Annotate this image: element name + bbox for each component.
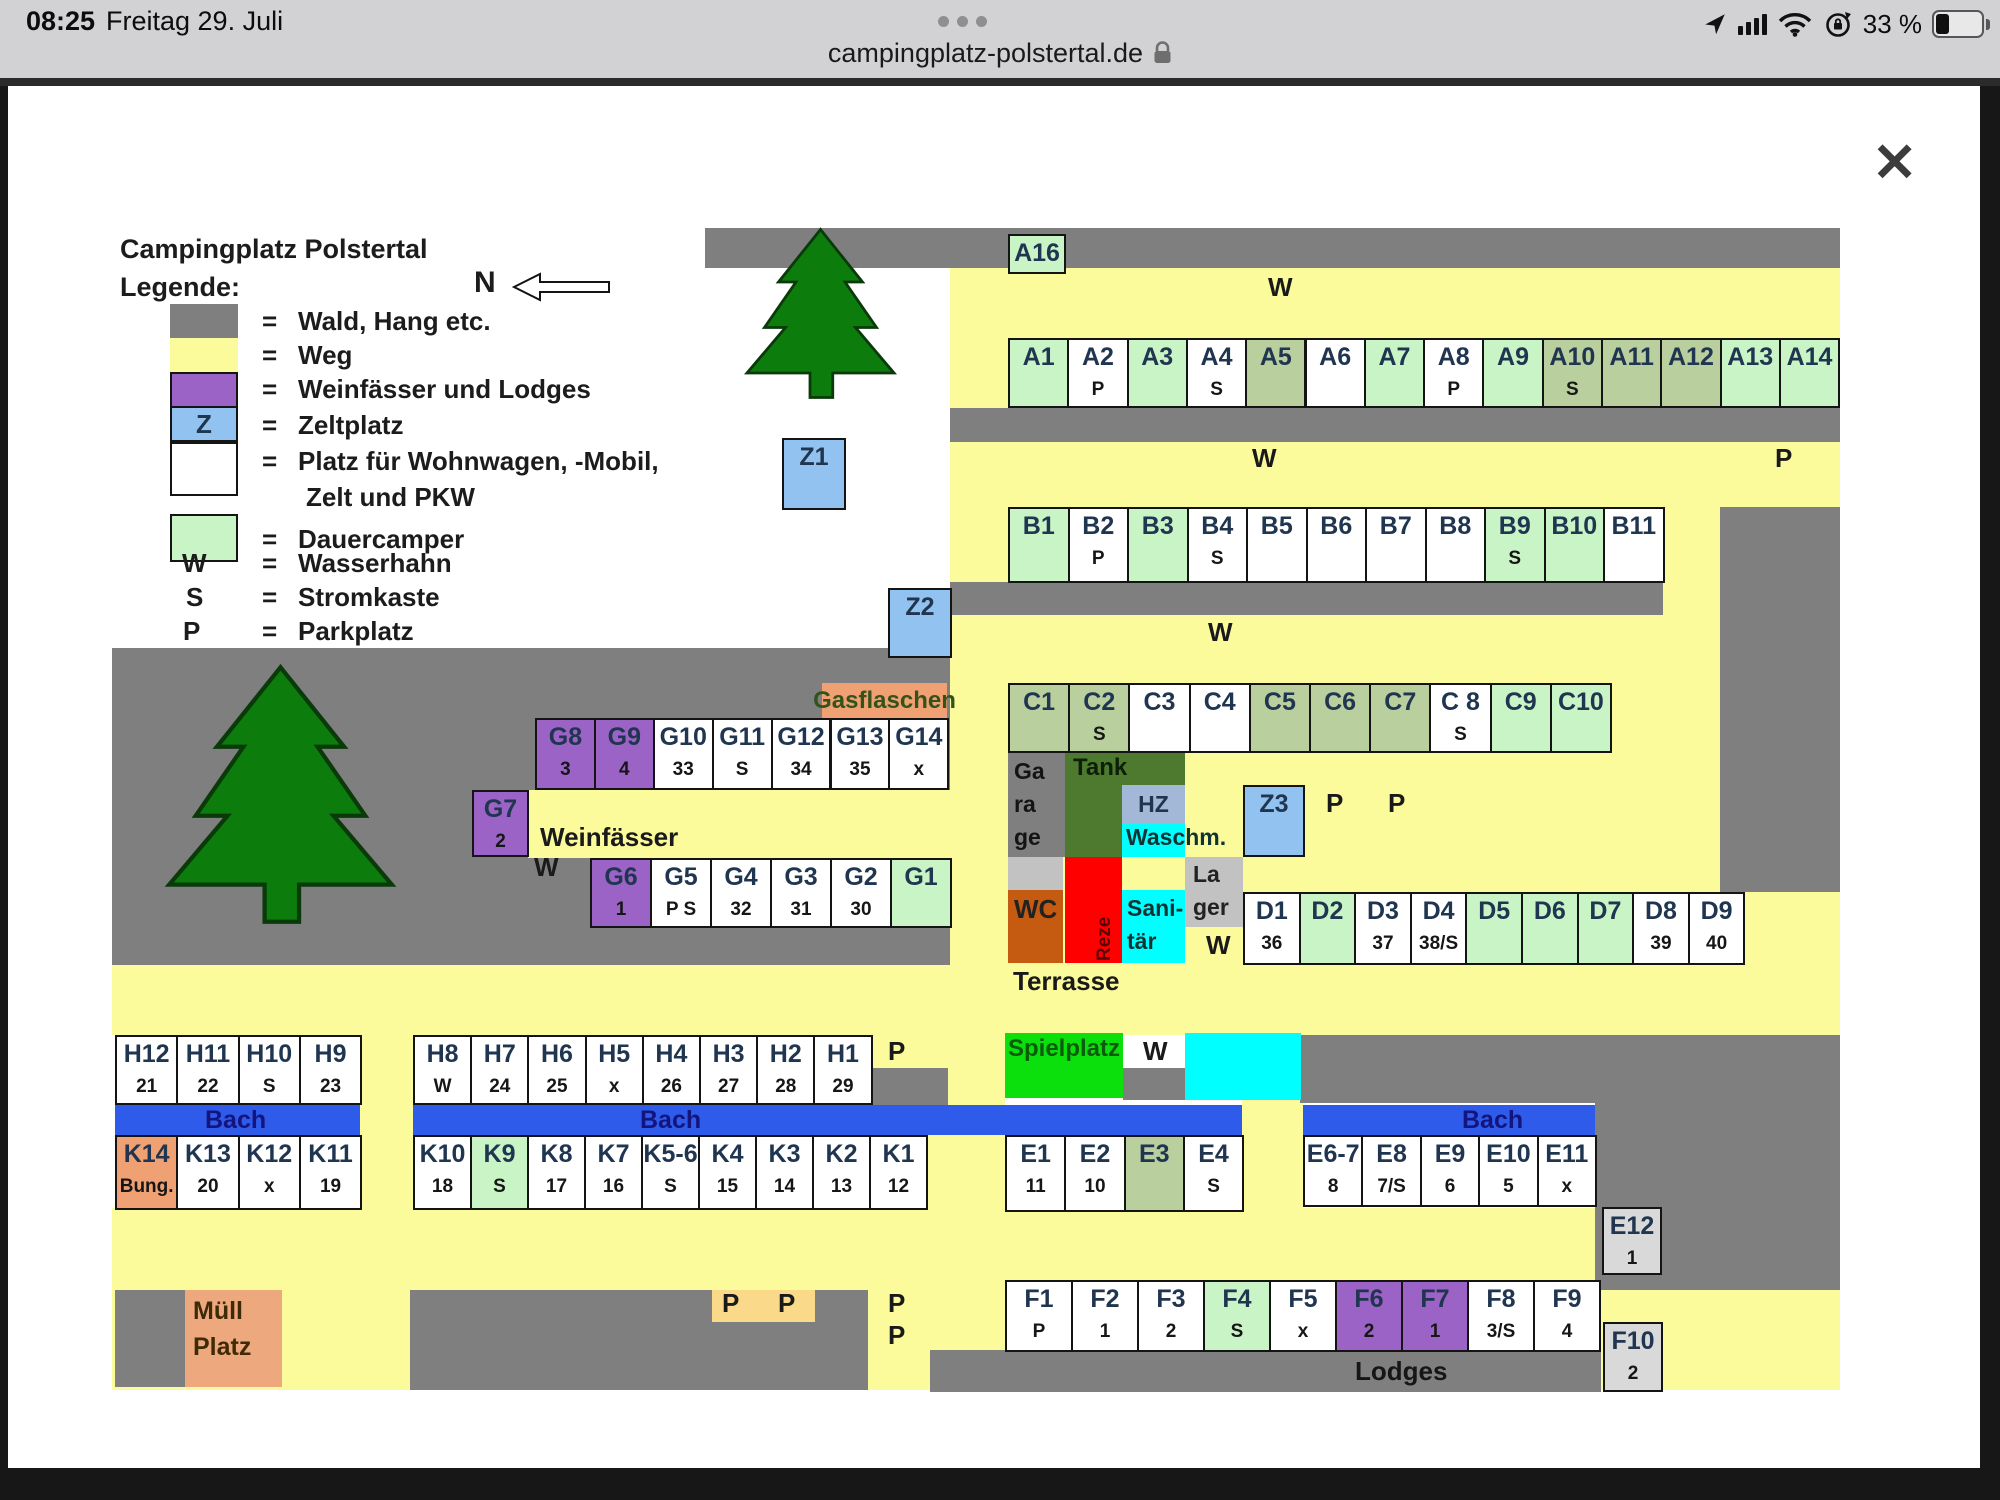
site-cell-sub: 7/S: [1363, 1175, 1419, 1198]
site-cell-id: F2: [1073, 1285, 1137, 1314]
site-cell-C4: C4: [1189, 683, 1251, 753]
site-cell-B4: B4S: [1187, 507, 1249, 583]
site-cell-id: G13: [832, 723, 889, 752]
site-cell-id: F8: [1469, 1285, 1533, 1314]
site-cell-E8: E87/S: [1361, 1135, 1421, 1207]
site-cell-id: A9: [1484, 343, 1541, 372]
site-cell-id: K9: [472, 1140, 527, 1169]
site-cell-id: K2: [814, 1140, 869, 1169]
site-cell-G6: G61: [590, 858, 652, 928]
site-cell-id: K3: [757, 1140, 812, 1169]
site-cell-sub: 39: [1634, 932, 1688, 955]
site-cell-H3: H327: [699, 1035, 758, 1105]
site-cell-H8: H8W: [413, 1035, 472, 1105]
site-cell-sub: 13: [814, 1175, 869, 1198]
site-cell-H9: H923: [299, 1035, 362, 1105]
site-cell-F6: F62: [1335, 1280, 1403, 1352]
site-cell-sub: 21: [117, 1075, 176, 1098]
site-cell-sub: P: [1070, 547, 1128, 570]
site-cell-id: B5: [1248, 512, 1306, 541]
site-cell-sub: 28: [758, 1075, 813, 1098]
site-cell-id: C5: [1251, 688, 1309, 717]
site-cell-A8: A8P: [1423, 338, 1484, 408]
site-cell-sub: 2: [1605, 1362, 1661, 1385]
site-cell-H6: H625: [527, 1035, 586, 1105]
site-cell-sub: 11: [1007, 1175, 1064, 1198]
site-cell-id: H6: [529, 1040, 584, 1069]
site-cell-id: E11: [1539, 1140, 1595, 1169]
site-cell-D3: D337: [1354, 892, 1412, 965]
site-cell-sub: 35: [832, 758, 889, 781]
site-cell-id: G8: [537, 723, 594, 752]
site-cell-id: F7: [1403, 1285, 1467, 1314]
site-cell-E2: E210: [1064, 1135, 1125, 1212]
site-cell-id: C 8: [1431, 688, 1489, 717]
site-cell-id: D1: [1245, 897, 1299, 926]
site-cell-K11: K1119: [299, 1135, 362, 1210]
site-cell-G12: G1234: [771, 718, 832, 790]
site-cell-A5: A5: [1245, 338, 1306, 408]
site-cell-sub: 3: [537, 758, 594, 781]
path-label-p_h: P: [888, 1036, 905, 1066]
site-cell-E12: E121: [1602, 1207, 1662, 1275]
site-cell-K8: K817: [527, 1135, 586, 1210]
path-label-p_beige_1: P: [722, 1288, 739, 1318]
screen-edge-right: [1980, 86, 2000, 1500]
site-cell-A16: A16: [1008, 234, 1066, 274]
site-cell-id: A10: [1544, 343, 1601, 372]
path-label-w_band2: W: [1252, 443, 1277, 473]
site-cell-sub: 1: [1403, 1320, 1467, 1343]
site-cell-F9: F94: [1533, 1280, 1601, 1352]
site-cell-sub: 24: [472, 1075, 527, 1098]
bottom-bar: [0, 1468, 2000, 1500]
screen-edge-left: [0, 86, 8, 1500]
site-cell-id: A8: [1425, 343, 1482, 372]
site-cell-id: E4: [1185, 1140, 1242, 1169]
site-cells-layer: A1A2PA3A4SA5A6A7A8PA9A10SA11A12A13A14B1B…: [0, 0, 2000, 1500]
site-cell-id: C2: [1070, 688, 1128, 717]
site-cell-sub: 27: [701, 1075, 756, 1098]
site-cell-sub: 2: [474, 830, 527, 853]
site-cell-id: A14: [1781, 343, 1838, 372]
site-cell-id: G9: [596, 723, 653, 752]
site-cell-K7: K716: [584, 1135, 643, 1210]
site-cell-id: C3: [1130, 688, 1188, 717]
site-cell-id: G3: [772, 863, 830, 892]
site-cell-sub: 10: [1066, 1175, 1123, 1198]
site-cell-K12: K12x: [238, 1135, 301, 1210]
site-cell-C10: C10: [1550, 683, 1612, 753]
site-cell-sub: Bung.: [117, 1175, 176, 1198]
site-cell-id: A7: [1366, 343, 1423, 372]
site-cell-id: H8: [415, 1040, 470, 1069]
site-cell-A12: A12: [1660, 338, 1721, 408]
site-cell-id: G6: [592, 863, 650, 892]
site-cell-sub: 38/S: [1412, 932, 1466, 955]
site-cell-id: D3: [1356, 897, 1410, 926]
site-cell-id: B7: [1367, 512, 1425, 541]
site-cell-id: B9: [1486, 512, 1544, 541]
site-cell-D1: D136: [1243, 892, 1301, 965]
site-cell-G8: G83: [535, 718, 596, 790]
site-cell-sub: x: [1539, 1175, 1595, 1198]
site-cell-E4: E4S: [1183, 1135, 1244, 1212]
site-cell-sub: 8: [1305, 1175, 1361, 1198]
site-cell-id: E12: [1604, 1212, 1660, 1241]
site-cell-C2: C2S: [1068, 683, 1130, 753]
site-cell-F2: F21: [1071, 1280, 1139, 1352]
site-cell-id: D8: [1634, 897, 1688, 926]
site-cell-id: F3: [1139, 1285, 1203, 1314]
site-cell-sub: 20: [178, 1175, 237, 1198]
site-cell-C 8: C 8S: [1429, 683, 1491, 753]
site-map: Campingplatz Polstertal Legende: N Z W S…: [0, 0, 2000, 1500]
path-label-w_lager: W: [1206, 930, 1231, 960]
site-cell-id: A2: [1069, 343, 1126, 372]
site-cell-sub: x: [587, 1075, 642, 1098]
site-cell-sub: 31: [772, 898, 830, 921]
site-cell-id: F6: [1337, 1285, 1401, 1314]
site-cell-C7: C7: [1369, 683, 1431, 753]
site-cell-id: B2: [1070, 512, 1128, 541]
site-cell-sub: S: [1070, 723, 1128, 746]
site-cell-G11: G11S: [712, 718, 773, 790]
site-cell-id: K4: [700, 1140, 755, 1169]
site-cell-id: A12: [1662, 343, 1719, 372]
site-cell-K10: K1018: [413, 1135, 472, 1210]
site-cell-A13: A13: [1720, 338, 1781, 408]
site-cell-C9: C9: [1490, 683, 1552, 753]
site-cell-id: F1: [1007, 1285, 1071, 1314]
path-label-w_spielplatz: W: [1143, 1036, 1168, 1066]
site-cell-id: H2: [758, 1040, 813, 1069]
site-cell-G2: G230: [830, 858, 892, 928]
site-cell-id: C7: [1371, 688, 1429, 717]
path-label-w_band3: W: [1208, 617, 1233, 647]
site-cell-sub: 1: [1604, 1247, 1660, 1270]
site-cell-sub: 32: [712, 898, 770, 921]
site-cell-sub: S: [1431, 723, 1489, 746]
site-cell-sub: x: [1271, 1320, 1335, 1343]
site-cell-D8: D839: [1632, 892, 1690, 965]
site-cell-id: H7: [472, 1040, 527, 1069]
site-cell-A1: A1: [1008, 338, 1069, 408]
site-cell-A7: A7: [1364, 338, 1425, 408]
site-cell-id: C4: [1191, 688, 1249, 717]
site-cell-sub: S: [1185, 1175, 1242, 1198]
site-cell-id: G12: [773, 723, 830, 752]
path-label-p_beige_2: P: [778, 1288, 795, 1318]
site-cell-sub: x: [240, 1175, 299, 1198]
site-cell-id: F4: [1205, 1285, 1269, 1314]
site-cell-sub: 37: [1356, 932, 1410, 955]
site-cell-id: F9: [1535, 1285, 1599, 1314]
site-cell-F3: F32: [1137, 1280, 1205, 1352]
site-cell-id: A4: [1188, 343, 1245, 372]
site-cell-E1: E111: [1005, 1135, 1066, 1212]
site-cell-id: A1: [1010, 343, 1067, 372]
site-cell-sub: S: [1205, 1320, 1269, 1343]
site-cell-A10: A10S: [1542, 338, 1603, 408]
site-cell-H10: H10S: [238, 1035, 301, 1105]
site-cell-Z1: Z1: [782, 438, 846, 510]
site-cell-G1: G1: [890, 858, 952, 928]
site-cell-id: H5: [587, 1040, 642, 1069]
site-cell-sub: P S: [652, 898, 710, 921]
site-cell-id: A16: [1010, 239, 1064, 268]
site-cell-id: C6: [1311, 688, 1369, 717]
site-cell-id: K13: [178, 1140, 237, 1169]
site-cell-id: B3: [1129, 512, 1187, 541]
site-cell-F1: F1P: [1005, 1280, 1073, 1352]
site-cell-id: B10: [1546, 512, 1604, 541]
site-cell-id: E2: [1066, 1140, 1123, 1169]
site-cell-F5: F5x: [1269, 1280, 1337, 1352]
site-cell-sub: S: [240, 1075, 299, 1098]
site-cell-A9: A9: [1482, 338, 1543, 408]
site-cell-sub: P: [1069, 378, 1126, 401]
site-cell-sub: 12: [871, 1175, 926, 1198]
site-cell-id: H11: [178, 1040, 237, 1069]
site-cell-id: A6: [1307, 343, 1364, 372]
site-cell-C5: C5: [1249, 683, 1311, 753]
site-cell-sub: S: [1188, 378, 1245, 401]
site-cell-id: K10: [415, 1140, 470, 1169]
site-cell-B11: B11: [1603, 507, 1665, 583]
site-cell-G4: G432: [710, 858, 772, 928]
site-cell-G3: G331: [770, 858, 832, 928]
site-cell-sub: 1: [1073, 1320, 1137, 1343]
site-cell-H12: H1221: [115, 1035, 178, 1105]
site-cell-sub: 2: [1139, 1320, 1203, 1343]
site-cell-sub: 2: [1337, 1320, 1401, 1343]
site-cell-id: E10: [1480, 1140, 1536, 1169]
site-cell-id: D7: [1579, 897, 1633, 926]
site-cell-id: G14: [890, 723, 947, 752]
site-cell-sub: 17: [529, 1175, 584, 1198]
site-cell-B7: B7: [1365, 507, 1427, 583]
site-cell-G7: G72: [472, 790, 529, 857]
site-cell-H1: H129: [813, 1035, 872, 1105]
site-cell-id: G10: [655, 723, 712, 752]
site-cell-id: D9: [1690, 897, 1744, 926]
site-cell-E11: E11x: [1537, 1135, 1597, 1207]
site-cell-H2: H228: [756, 1035, 815, 1105]
site-cell-C3: C3: [1128, 683, 1190, 753]
site-cell-H7: H724: [470, 1035, 529, 1105]
site-cell-B8: B8: [1425, 507, 1487, 583]
site-cell-sub: 5: [1480, 1175, 1536, 1198]
site-cell-C1: C1: [1008, 683, 1070, 753]
site-cell-G13: G1335: [830, 718, 891, 790]
site-cell-sub: 6: [1422, 1175, 1478, 1198]
site-cell-sub: 26: [644, 1075, 699, 1098]
site-cell-A2: A2P: [1067, 338, 1128, 408]
site-cell-sub: 3/S: [1469, 1320, 1533, 1343]
site-cell-E10: E105: [1478, 1135, 1538, 1207]
path-label-p_band2: P: [1775, 443, 1792, 473]
site-cell-F8: F83/S: [1467, 1280, 1535, 1352]
site-cell-sub: P: [1007, 1320, 1071, 1343]
site-cell-B2: B2P: [1068, 507, 1130, 583]
site-cell-id: A5: [1247, 343, 1304, 372]
site-cell-H4: H426: [642, 1035, 701, 1105]
site-cell-id: H4: [644, 1040, 699, 1069]
site-cell-id: B8: [1427, 512, 1485, 541]
site-cell-id: E6-7: [1305, 1140, 1361, 1169]
site-cell-id: D4: [1412, 897, 1466, 926]
site-cell-sub: P: [1425, 378, 1482, 401]
site-cell-D7: D7: [1577, 892, 1635, 965]
site-cell-sub: 18: [415, 1175, 470, 1198]
site-cell-sub: 4: [1535, 1320, 1599, 1343]
site-cell-G14: G14x: [888, 718, 949, 790]
site-cell-id: K1: [871, 1140, 926, 1169]
site-cell-id: H9: [301, 1040, 360, 1069]
path-label-w_top: W: [1268, 272, 1293, 302]
site-cell-id: K7: [586, 1140, 641, 1169]
site-cell-sub: 33: [655, 758, 712, 781]
site-cell-E3: E3: [1124, 1135, 1185, 1212]
site-cell-A11: A11: [1601, 338, 1662, 408]
path-label-p_stack_1: P: [888, 1288, 905, 1318]
site-cell-id: H3: [701, 1040, 756, 1069]
site-cell-id: B4: [1189, 512, 1247, 541]
site-cell-sub: S: [1189, 547, 1247, 570]
site-cell-id: A11: [1603, 343, 1660, 372]
site-cell-id: E9: [1422, 1140, 1478, 1169]
site-cell-id: Z1: [784, 443, 844, 472]
path-label-p_z3_2: P: [1388, 788, 1405, 818]
path-label-w_g: W: [534, 852, 559, 882]
site-cell-B1: B1: [1008, 507, 1070, 583]
site-cell-sub: 29: [815, 1075, 870, 1098]
site-cell-A4: A4S: [1186, 338, 1247, 408]
site-cell-sub: 40: [1690, 932, 1744, 955]
site-cell-H11: H1122: [176, 1035, 239, 1105]
site-cell-F10: F102: [1603, 1322, 1663, 1392]
site-cell-id: Z2: [890, 593, 950, 622]
site-cell-id: D6: [1523, 897, 1577, 926]
site-cell-B10: B10: [1544, 507, 1606, 583]
site-cell-sub: 1: [592, 898, 650, 921]
site-cell-id: C1: [1010, 688, 1068, 717]
site-cell-sub: 19: [301, 1175, 360, 1198]
site-cell-E9: E96: [1420, 1135, 1480, 1207]
site-cell-Z2: Z2: [888, 588, 952, 658]
site-cell-id: E1: [1007, 1140, 1064, 1169]
site-cell-sub: 34: [773, 758, 830, 781]
site-cell-id: K14: [117, 1140, 176, 1169]
site-cell-id: E8: [1363, 1140, 1419, 1169]
site-cell-A6: A6: [1305, 338, 1366, 408]
site-cell-E6-7: E6-78: [1303, 1135, 1363, 1207]
site-cell-D5: D5: [1465, 892, 1523, 965]
site-cell-sub: S: [1544, 378, 1601, 401]
site-cell-sub: 4: [596, 758, 653, 781]
site-cell-K3: K314: [755, 1135, 814, 1210]
site-cell-A14: A14: [1779, 338, 1840, 408]
site-cell-K1: K112: [869, 1135, 928, 1210]
site-cell-sub: 22: [178, 1075, 237, 1098]
site-cell-sub: 15: [700, 1175, 755, 1198]
site-cell-C6: C6: [1309, 683, 1371, 753]
site-cell-sub: S: [714, 758, 771, 781]
site-cell-D6: D6: [1521, 892, 1579, 965]
site-cell-sub: 30: [832, 898, 890, 921]
site-cell-id: F10: [1605, 1327, 1661, 1356]
ipad-screen: 08:25 Freitag 29. Juli campingplatz-pols…: [0, 0, 2000, 1500]
site-cell-K2: K213: [812, 1135, 871, 1210]
site-cell-H5: H5x: [585, 1035, 644, 1105]
site-cell-id: A3: [1129, 343, 1186, 372]
close-icon[interactable]: ✕: [1872, 134, 1917, 192]
site-cell-id: G1: [892, 863, 950, 892]
site-cell-id: G11: [714, 723, 771, 752]
site-cell-id: G7: [474, 795, 527, 824]
site-cell-sub: 25: [529, 1075, 584, 1098]
site-cell-B9: B9S: [1484, 507, 1546, 583]
site-cell-K14: K14Bung.: [115, 1135, 178, 1210]
site-cell-id: F5: [1271, 1285, 1335, 1314]
site-cell-sub: S: [1486, 547, 1544, 570]
site-cell-D4: D438/S: [1410, 892, 1468, 965]
site-cell-id: G4: [712, 863, 770, 892]
site-cell-G9: G94: [594, 718, 655, 790]
path-label-p_z3_1: P: [1326, 788, 1343, 818]
site-cell-sub: S: [472, 1175, 527, 1198]
site-cell-id: H1: [815, 1040, 870, 1069]
site-cell-K4: K415: [698, 1135, 757, 1210]
site-cell-K9: K9S: [470, 1135, 529, 1210]
path-label-p_stack_2: P: [888, 1320, 905, 1350]
site-cell-id: B1: [1010, 512, 1068, 541]
site-cell-sub: S: [643, 1175, 698, 1198]
site-cell-id: D5: [1467, 897, 1521, 926]
site-cell-id: A13: [1722, 343, 1779, 372]
site-cell-B5: B5: [1246, 507, 1308, 583]
site-cell-G5: G5P S: [650, 858, 712, 928]
site-cell-A3: A3: [1127, 338, 1188, 408]
site-cell-id: K8: [529, 1140, 584, 1169]
site-cell-sub: 36: [1245, 932, 1299, 955]
site-cell-B6: B6: [1306, 507, 1368, 583]
site-cell-id: C10: [1552, 688, 1610, 717]
site-cell-G10: G1033: [653, 718, 714, 790]
site-cell-sub: x: [890, 758, 947, 781]
site-cell-sub: 14: [757, 1175, 812, 1198]
site-cell-sub: 16: [586, 1175, 641, 1198]
site-cell-id: B11: [1605, 512, 1663, 541]
site-cell-B3: B3: [1127, 507, 1189, 583]
site-cell-id: K11: [301, 1140, 360, 1169]
site-cell-id: C9: [1492, 688, 1550, 717]
site-cell-F7: F71: [1401, 1280, 1469, 1352]
site-cell-K5-6: K5-6S: [641, 1135, 700, 1210]
site-cell-id: G2: [832, 863, 890, 892]
site-cell-D2: D2: [1299, 892, 1357, 965]
site-cell-id: G5: [652, 863, 710, 892]
site-cell-K13: K1320: [176, 1135, 239, 1210]
site-cell-sub: W: [415, 1075, 470, 1098]
site-cell-sub: 23: [301, 1075, 360, 1098]
site-cell-id: E3: [1126, 1140, 1183, 1169]
site-cell-id: H12: [117, 1040, 176, 1069]
site-cell-F4: F4S: [1203, 1280, 1271, 1352]
site-cell-id: H10: [240, 1040, 299, 1069]
site-cell-id: B6: [1308, 512, 1366, 541]
